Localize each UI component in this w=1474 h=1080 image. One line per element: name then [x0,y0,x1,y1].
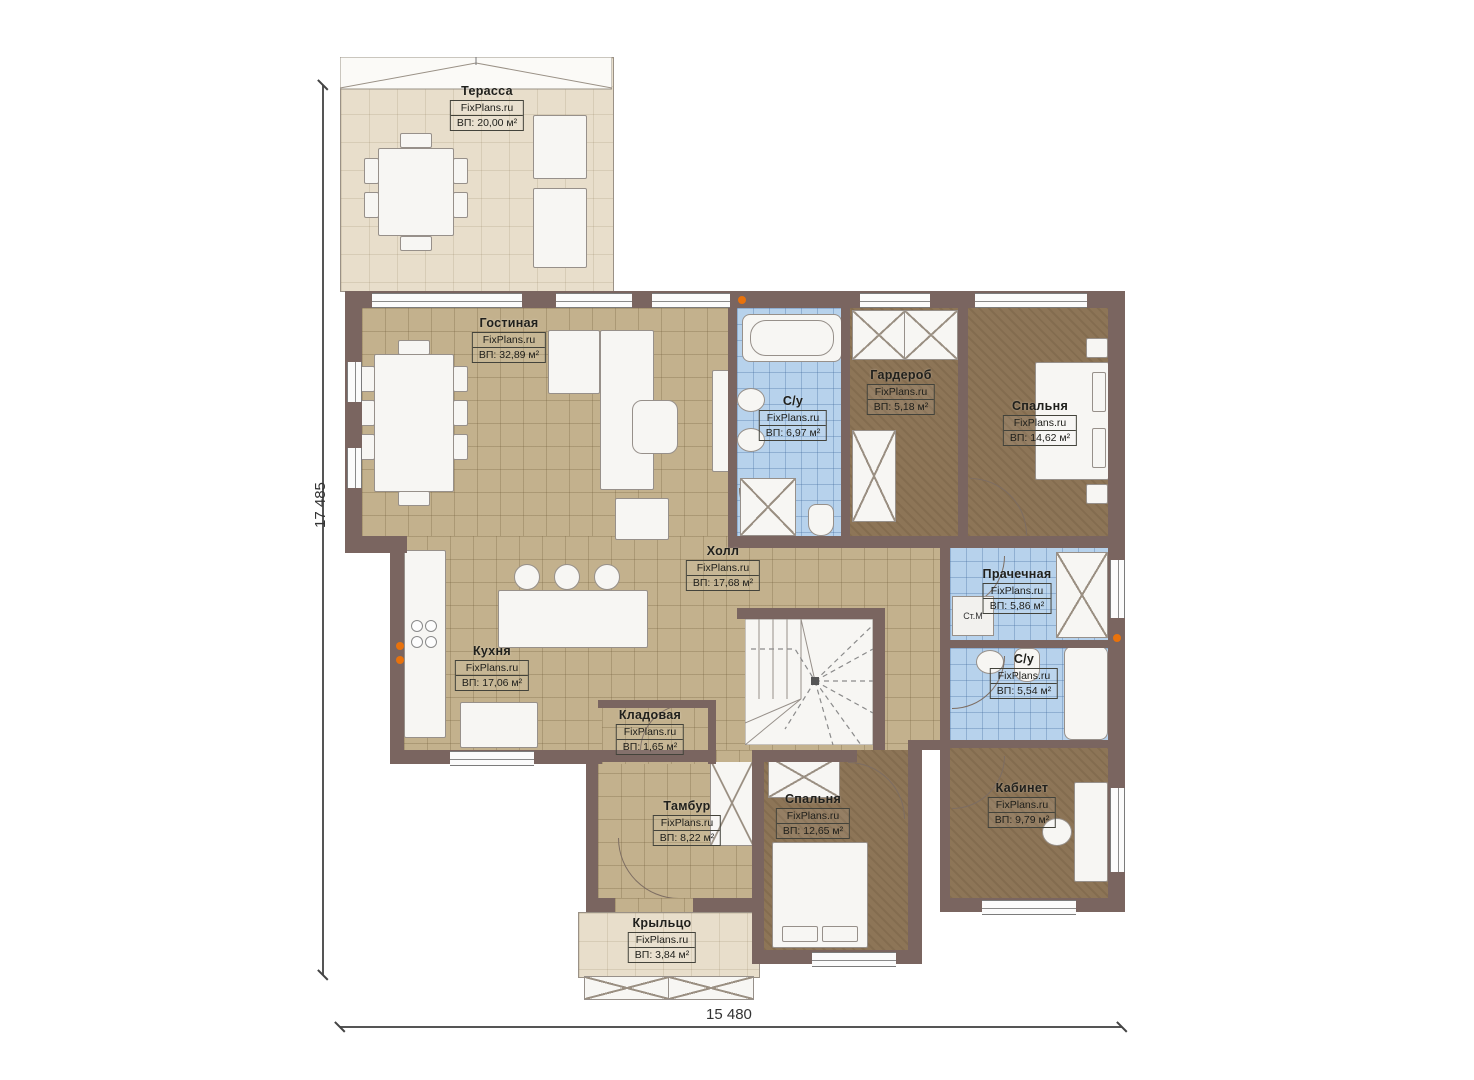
dining-chair [398,340,430,355]
pillow [1092,372,1106,412]
sofa [548,330,600,394]
room-label-terrace: Терасса FixPlans.ru ВП: 20,00 м² [450,84,524,131]
wall-kitchen-left [390,536,404,764]
room-site: FixPlans.ru [473,333,545,347]
coffee-table [632,400,678,454]
dining-chair [360,366,375,392]
room-name: Прачечная [983,567,1052,581]
room-site: FixPlans.ru [868,385,934,399]
room-area: ВП: 32,89 м² [473,347,545,362]
terrace-chair [453,192,468,218]
room-label-study: Кабинет FixPlans.ru ВП: 9,79 м² [988,781,1056,828]
room-area: ВП: 1,65 м² [617,739,683,754]
room-label-hall: Холл FixPlans.ru ВП: 17,68 м² [686,544,760,591]
room-name: Холл [707,544,740,558]
room-area: ВП: 5,86 м² [984,598,1050,613]
bar-stool [594,564,620,590]
dining-chair [453,400,468,426]
socket-dot [738,296,746,304]
window-study-right [1110,788,1125,872]
room-label-bedroom2: Спальня FixPlans.ru ВП: 12,65 м² [776,792,850,839]
room-area: ВП: 17,68 м² [687,575,759,590]
room-name: С/у [783,394,803,408]
room-name: Спальня [785,792,841,806]
room-name: Тамбур [663,799,710,813]
terrace-dining-table [378,148,454,236]
stove-burner [411,620,423,632]
wall-bath2-bottom [945,740,1110,748]
room-site: FixPlans.ru [617,725,683,739]
window-wardrobe-top [860,293,930,308]
room-site: FixPlans.ru [991,669,1057,683]
room-label-kitchen: Кухня FixPlans.ru ВП: 17,06 м² [455,644,529,691]
porch-step [668,976,754,1000]
wall-pantry-right [708,700,716,764]
room-name: Кладовая [619,708,681,722]
floor-plan: Ст.М Терасс [0,0,1474,1080]
wall-hall-bottom2 [752,750,857,762]
dimension-bottom-value: 15 480 [706,1006,752,1023]
terrace-chair [400,236,432,251]
room-name: Крыльцо [633,916,692,930]
room-site: FixPlans.ru [777,809,849,823]
terrace-chair [400,133,432,148]
wall-bath1-left [728,308,737,536]
socket-dot [1113,634,1121,642]
room-label-tambour: Тамбур FixPlans.ru ВП: 8,22 м² [653,799,721,846]
wall-notch-top [908,740,950,750]
dimension-line-left [322,85,324,975]
room-label-porch: Крыльцо FixPlans.ru ВП: 3,84 м² [628,916,696,963]
window-living-left2 [347,448,362,488]
room-name: Терасса [461,84,513,98]
opening-tambour-porch [615,898,693,912]
stove-burner [411,636,423,648]
room-name: Кухня [473,644,511,658]
terrace-chair [364,192,379,218]
kitchen-sink-block [460,702,538,748]
room-name: Спальня [1012,399,1068,413]
window-laundry-right [1110,560,1125,618]
desk [1074,782,1108,882]
room-site: FixPlans.ru [451,101,523,115]
room-area: ВП: 14,62 м² [1004,430,1076,445]
room-label-pantry: Кладовая FixPlans.ru ВП: 1,65 м² [616,708,684,755]
dimension-left-value: 17 485 [312,482,329,528]
toilet [808,504,834,536]
room-label-laundry: Прачечная FixPlans.ru ВП: 5,86 м² [983,567,1052,614]
bathtub [1064,646,1108,740]
room-label-bedroom1: Спальня FixPlans.ru ВП: 14,62 м² [1003,399,1077,446]
dining-chair [453,366,468,392]
kitchen-island [498,590,648,648]
room-site: FixPlans.ru [989,798,1055,812]
wall-laundry-bottom [945,640,1110,648]
terrace-armchair [533,188,587,268]
dining-table [374,354,454,492]
window-terrace-door [372,293,522,308]
window-bedroom2-bottom [812,952,896,967]
closet [852,310,906,360]
terrace-chair [364,158,379,184]
wall-stairs-top [737,608,885,619]
wall-laundry-left [940,536,950,912]
wall-tambour-left [586,750,598,912]
dining-chair [453,434,468,460]
stove-burner [425,636,437,648]
bathtub-basin [750,320,834,356]
room-label-bathroom1: С/у FixPlans.ru ВП: 6,97 м² [759,394,827,441]
wall-left-upper [345,291,362,553]
pillow [822,926,858,942]
staircase [745,619,873,745]
room-site: FixPlans.ru [687,561,759,575]
window-living-top2 [652,293,730,308]
nightstand [1086,484,1108,504]
dining-chair [398,491,430,506]
laundry-cabinet [1056,552,1108,638]
window-kitchen-bottom [450,751,534,766]
socket-dot [396,656,404,664]
socket-dot [396,642,404,650]
room-name: Гостиная [480,316,539,330]
room-label-bathroom2: С/у FixPlans.ru ВП: 5,54 м² [990,652,1058,699]
window-living-top1 [556,293,632,308]
room-area: ВП: 17,06 м² [456,675,528,690]
armchair [615,498,669,540]
dining-chair [360,400,375,426]
room-site: FixPlans.ru [984,584,1050,598]
room-area: ВП: 5,18 м² [868,399,934,414]
wall-stairs-right [873,608,885,750]
room-label-living: Гостиная FixPlans.ru ВП: 32,89 м² [472,316,546,363]
closet [904,310,958,360]
wall-pantry-top [598,700,716,708]
wall-bedroom2-left [752,750,764,964]
room-label-wardrobe: Гардероб FixPlans.ru ВП: 5,18 м² [867,368,935,415]
room-area: ВП: 20,00 м² [451,115,523,130]
porch-step [584,976,670,1000]
washing-machine-label: Ст.М [963,611,983,621]
window-bedroom1-top [975,293,1087,308]
bar-stool [514,564,540,590]
room-area: ВП: 12,65 м² [777,823,849,838]
opening-tambour-hall [716,750,752,762]
room-site: FixPlans.ru [456,661,528,675]
shower [740,478,796,536]
dimension-line-bottom [340,1026,1122,1028]
room-area: ВП: 3,84 м² [629,947,695,962]
pillow [782,926,818,942]
closet [852,430,896,522]
nightstand [1086,338,1108,358]
room-area: ВП: 5,54 м² [991,683,1057,698]
wall-mid-horizontal [728,536,1125,548]
room-area: ВП: 8,22 м² [654,830,720,845]
room-site: FixPlans.ru [629,933,695,947]
room-name: С/у [1014,652,1034,666]
stove-burner [425,620,437,632]
room-area: ВП: 9,79 м² [989,812,1055,827]
room-site: FixPlans.ru [654,816,720,830]
room-name: Кабинет [996,781,1049,795]
wall-bath1-wardrobe [841,308,850,536]
room-area: ВП: 6,97 м² [760,425,826,440]
window-study-bottom [982,900,1076,915]
bar-stool [554,564,580,590]
window-living-left1 [347,362,362,402]
wall-wardrobe-bed1 [958,308,968,536]
dimension-bottom-label: 15 480 [706,1006,752,1023]
wall-bedroom2-right [908,750,922,964]
dimension-left-label: 17 485 [312,482,329,528]
terrace-armchair [533,115,587,179]
room-site: FixPlans.ru [1004,416,1076,430]
terrace-chair [453,158,468,184]
dining-chair [360,434,375,460]
room-site: FixPlans.ru [760,411,826,425]
room-name: Гардероб [870,368,931,382]
pillow [1092,428,1106,468]
